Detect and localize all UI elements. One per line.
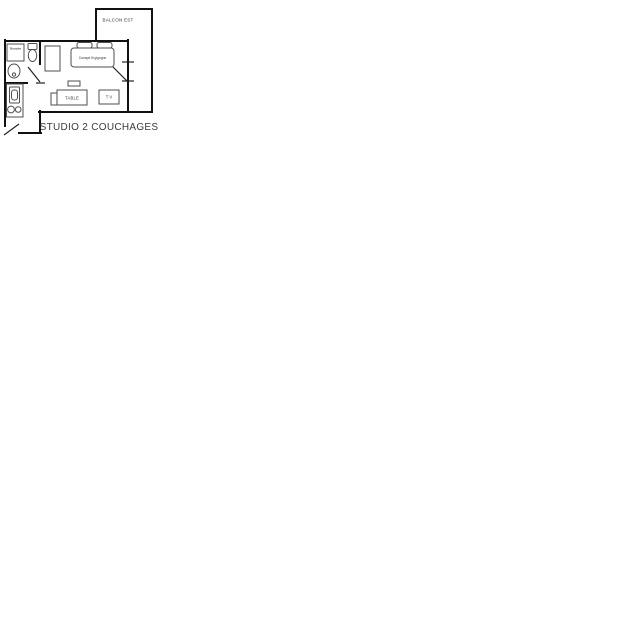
toilet-tank: [28, 44, 37, 50]
studio-floorplan: BALCON EST Douche Canapé lit gigogne TAB…: [0, 0, 638, 640]
balcony-outline-wall: [96, 9, 152, 112]
chair: [51, 93, 57, 105]
fixtures: [7, 43, 120, 118]
balcony-label: BALCON EST: [102, 18, 133, 23]
labels: BALCON EST Douche Canapé lit gigogne TAB…: [10, 18, 158, 134]
entry-door-leaf: [4, 124, 19, 135]
stool: [68, 81, 80, 86]
washbasin-drain: [12, 73, 15, 76]
kitchen-sink-basin: [12, 90, 18, 100]
sofa-cushion-right: [97, 43, 112, 49]
tv-label: T V: [106, 95, 113, 100]
toilet-bowl: [28, 50, 36, 62]
balcony-door-leaf: [113, 67, 127, 81]
walls: [5, 9, 152, 133]
floorplan-canvas: BALCON EST Douche Canapé lit gigogne TAB…: [0, 0, 638, 640]
sofa-cushion-left: [77, 43, 92, 49]
sofa-label: Canapé lit gigogne: [79, 56, 107, 60]
wardrobe: [45, 46, 60, 71]
plan-title: STUDIO 2 COUCHAGES: [40, 122, 159, 133]
hob-burner-right: [15, 107, 21, 113]
bathroom-door-leaf: [28, 67, 40, 82]
hob-burner-left: [8, 106, 15, 113]
table-label: TABLE: [65, 96, 79, 101]
shower-label: Douche: [10, 47, 21, 51]
